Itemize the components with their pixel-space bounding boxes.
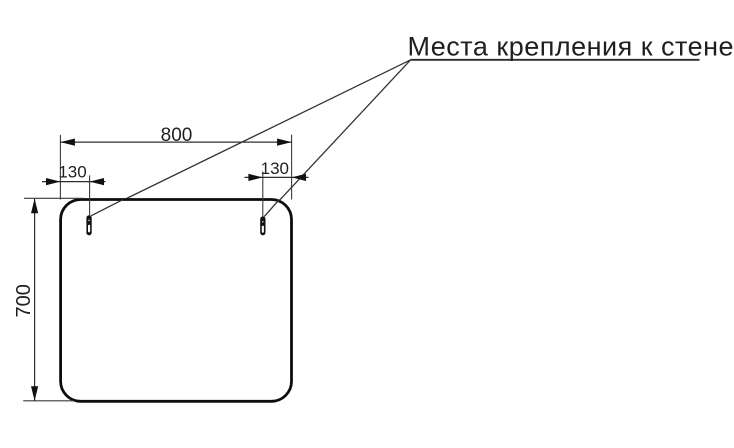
svg-text:130: 130 (261, 159, 289, 178)
svg-text:130: 130 (58, 163, 86, 182)
svg-text:Места крепления к стене: Места крепления к стене (408, 32, 734, 62)
svg-text:700: 700 (13, 284, 35, 317)
svg-text:800: 800 (161, 125, 193, 146)
